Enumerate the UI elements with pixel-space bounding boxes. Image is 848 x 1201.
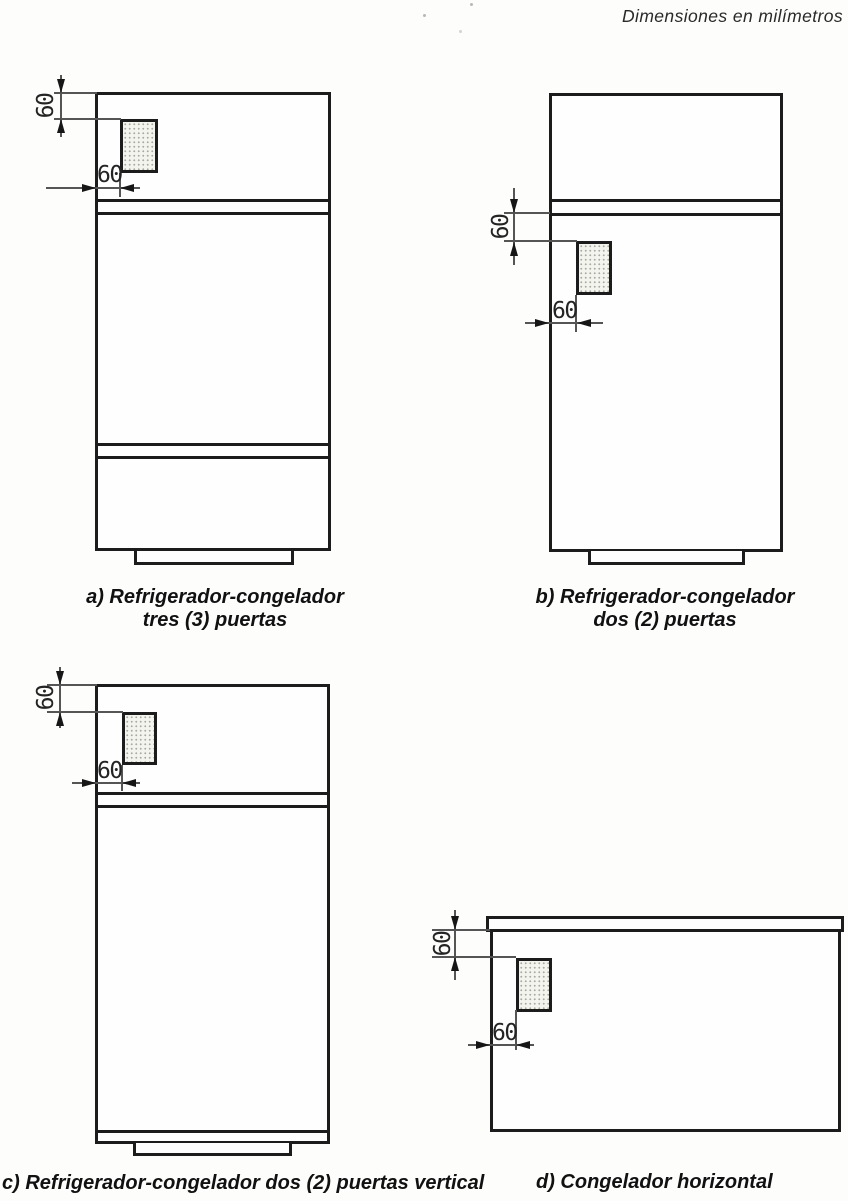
fig-b-caption: b) Refrigerador-congelador dos (2) puert… — [533, 586, 797, 632]
fig-a-door-divider-lower-line2 — [98, 456, 328, 459]
fig-a-door-divider-upper-line1 — [98, 199, 328, 202]
fig-c-side-dimension-value: 60 — [97, 760, 122, 783]
fig-b-door-divider-line1 — [552, 199, 780, 202]
dim-arrow-down — [451, 916, 459, 930]
fig-a-caption-line2: tres (3) puertas — [83, 609, 347, 632]
fig-a-door-divider-upper-line2 — [98, 212, 328, 215]
fig-b-base-plinth — [588, 551, 745, 565]
dim-arrow-right — [476, 1041, 490, 1049]
dim-arrow-left — [122, 779, 136, 787]
fig-b-top-dimension-value: 60 — [490, 207, 510, 247]
fig-d-side-dimension-value: 60 — [492, 1022, 517, 1045]
fig-b-side-dimension-value: 60 — [552, 300, 577, 323]
fig-a-base-plinth — [134, 551, 294, 565]
fig-d-caption: d) Congelador horizontal — [536, 1170, 773, 1194]
dim-arrow-up — [510, 242, 518, 256]
dim-arrow-left — [516, 1041, 530, 1049]
dim-arrow-up — [57, 119, 65, 133]
fig-a-top-dimension-value: 60 — [35, 86, 55, 126]
dim-arrow-right — [535, 319, 549, 327]
fig-c-caption: c) Refrigerador-congelador dos (2) puert… — [2, 1171, 484, 1195]
dim-arrow-right — [82, 779, 96, 787]
fig-b-marking-plate — [576, 241, 612, 295]
dim-arrow-down — [510, 199, 518, 213]
units-note: Dimensiones en milímetros — [622, 6, 843, 27]
scan-speck — [423, 14, 426, 17]
fig-c-marking-plate — [122, 712, 157, 765]
scan-speck — [470, 3, 473, 6]
fig-c-door-divider-line1 — [98, 792, 327, 795]
scan-speck — [459, 30, 462, 33]
fig-b-caption-line1: b) Refrigerador-congelador — [533, 586, 797, 609]
fig-d-body-outline — [490, 929, 841, 1132]
fig-a-marking-plate — [120, 119, 158, 173]
fig-c-bottom-band-line — [98, 1130, 327, 1133]
document-page: Dimensiones en milímetros 60 — [0, 0, 848, 1201]
fig-d-marking-plate — [516, 958, 552, 1012]
fig-a-door-divider-lower-line1 — [98, 443, 328, 446]
fig-c-cabinet-outline — [95, 684, 330, 1144]
fig-a-side-dimension-value: 60 — [97, 164, 122, 187]
fig-b-door-divider-line2 — [552, 213, 780, 216]
dim-arrow-left — [577, 319, 591, 327]
fig-c-base-plinth — [133, 1143, 292, 1156]
dim-arrow-left — [120, 184, 134, 192]
fig-c-door-divider-line2 — [98, 805, 327, 808]
dim-arrow-down — [57, 79, 65, 93]
fig-a-caption: a) Refrigerador-congelador tres (3) puer… — [83, 586, 347, 632]
fig-b-caption-line2: dos (2) puertas — [533, 609, 797, 632]
fig-c-top-dimension-value: 60 — [35, 678, 55, 718]
dim-arrow-up — [451, 957, 459, 971]
dim-arrow-right — [82, 184, 96, 192]
dim-arrow-up — [56, 712, 64, 726]
fig-a-caption-line1: a) Refrigerador-congelador — [83, 586, 347, 609]
dim-arrow-down — [56, 671, 64, 685]
fig-a-cabinet-outline — [95, 92, 331, 551]
fig-d-top-dimension-value: 60 — [432, 924, 452, 964]
